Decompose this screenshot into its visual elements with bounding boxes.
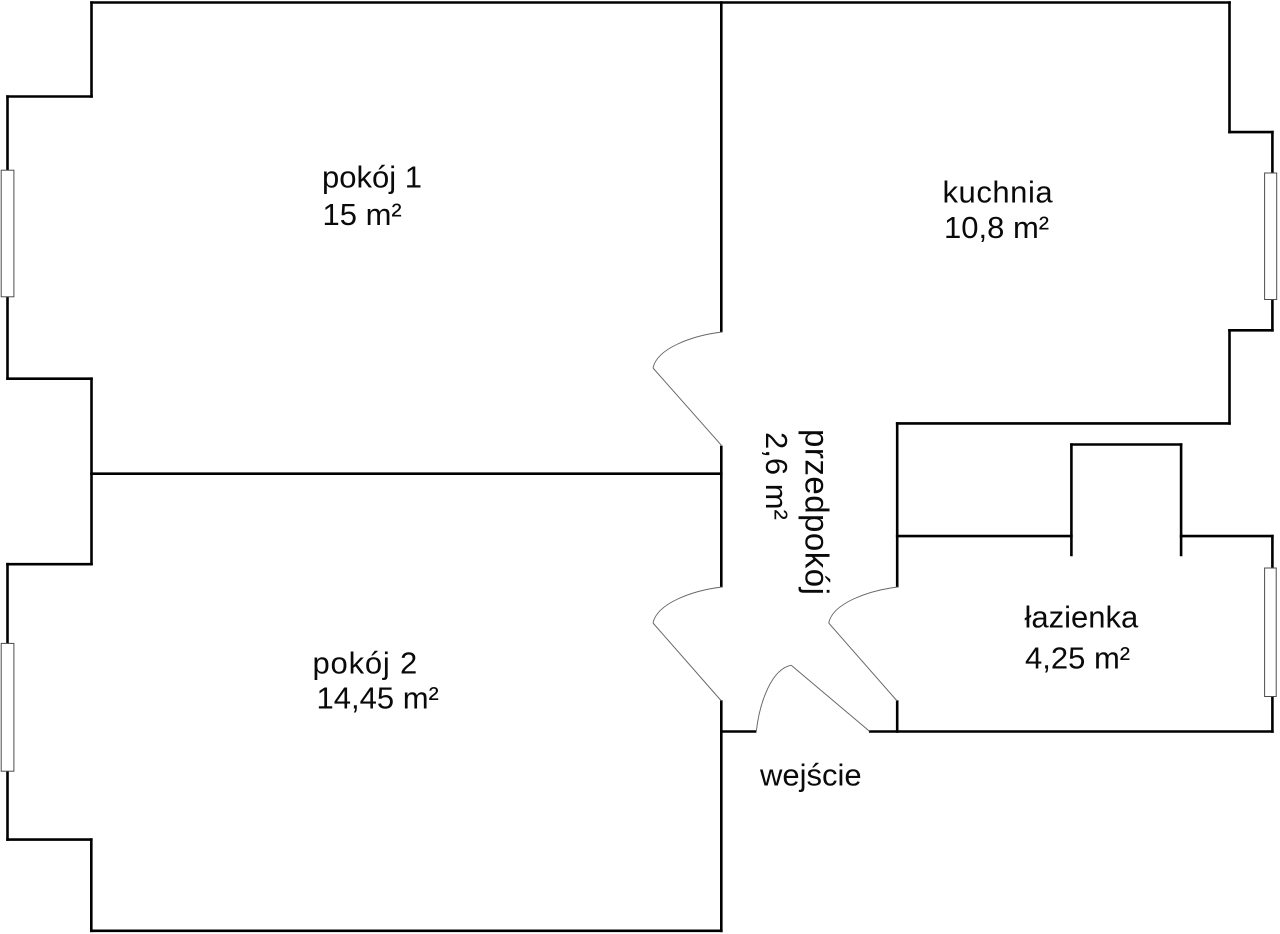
svg-text:14,45 m²: 14,45 m² xyxy=(317,680,439,715)
svg-text:pokój 2: pokój 2 xyxy=(313,646,419,681)
svg-text:łazienka: łazienka xyxy=(1025,599,1139,634)
svg-text:4,25 m²: 4,25 m² xyxy=(1025,641,1130,676)
svg-text:kuchnia: kuchnia xyxy=(943,175,1054,210)
svg-text:przedpokój: przedpokój xyxy=(799,429,836,595)
svg-text:2,6 m²: 2,6 m² xyxy=(759,432,794,520)
svg-text:pokój 1: pokój 1 xyxy=(322,160,422,195)
svg-text:15 m²: 15 m² xyxy=(323,197,402,232)
svg-text:10,8 m²: 10,8 m² xyxy=(944,210,1049,245)
svg-text:wejście: wejście xyxy=(759,758,862,793)
